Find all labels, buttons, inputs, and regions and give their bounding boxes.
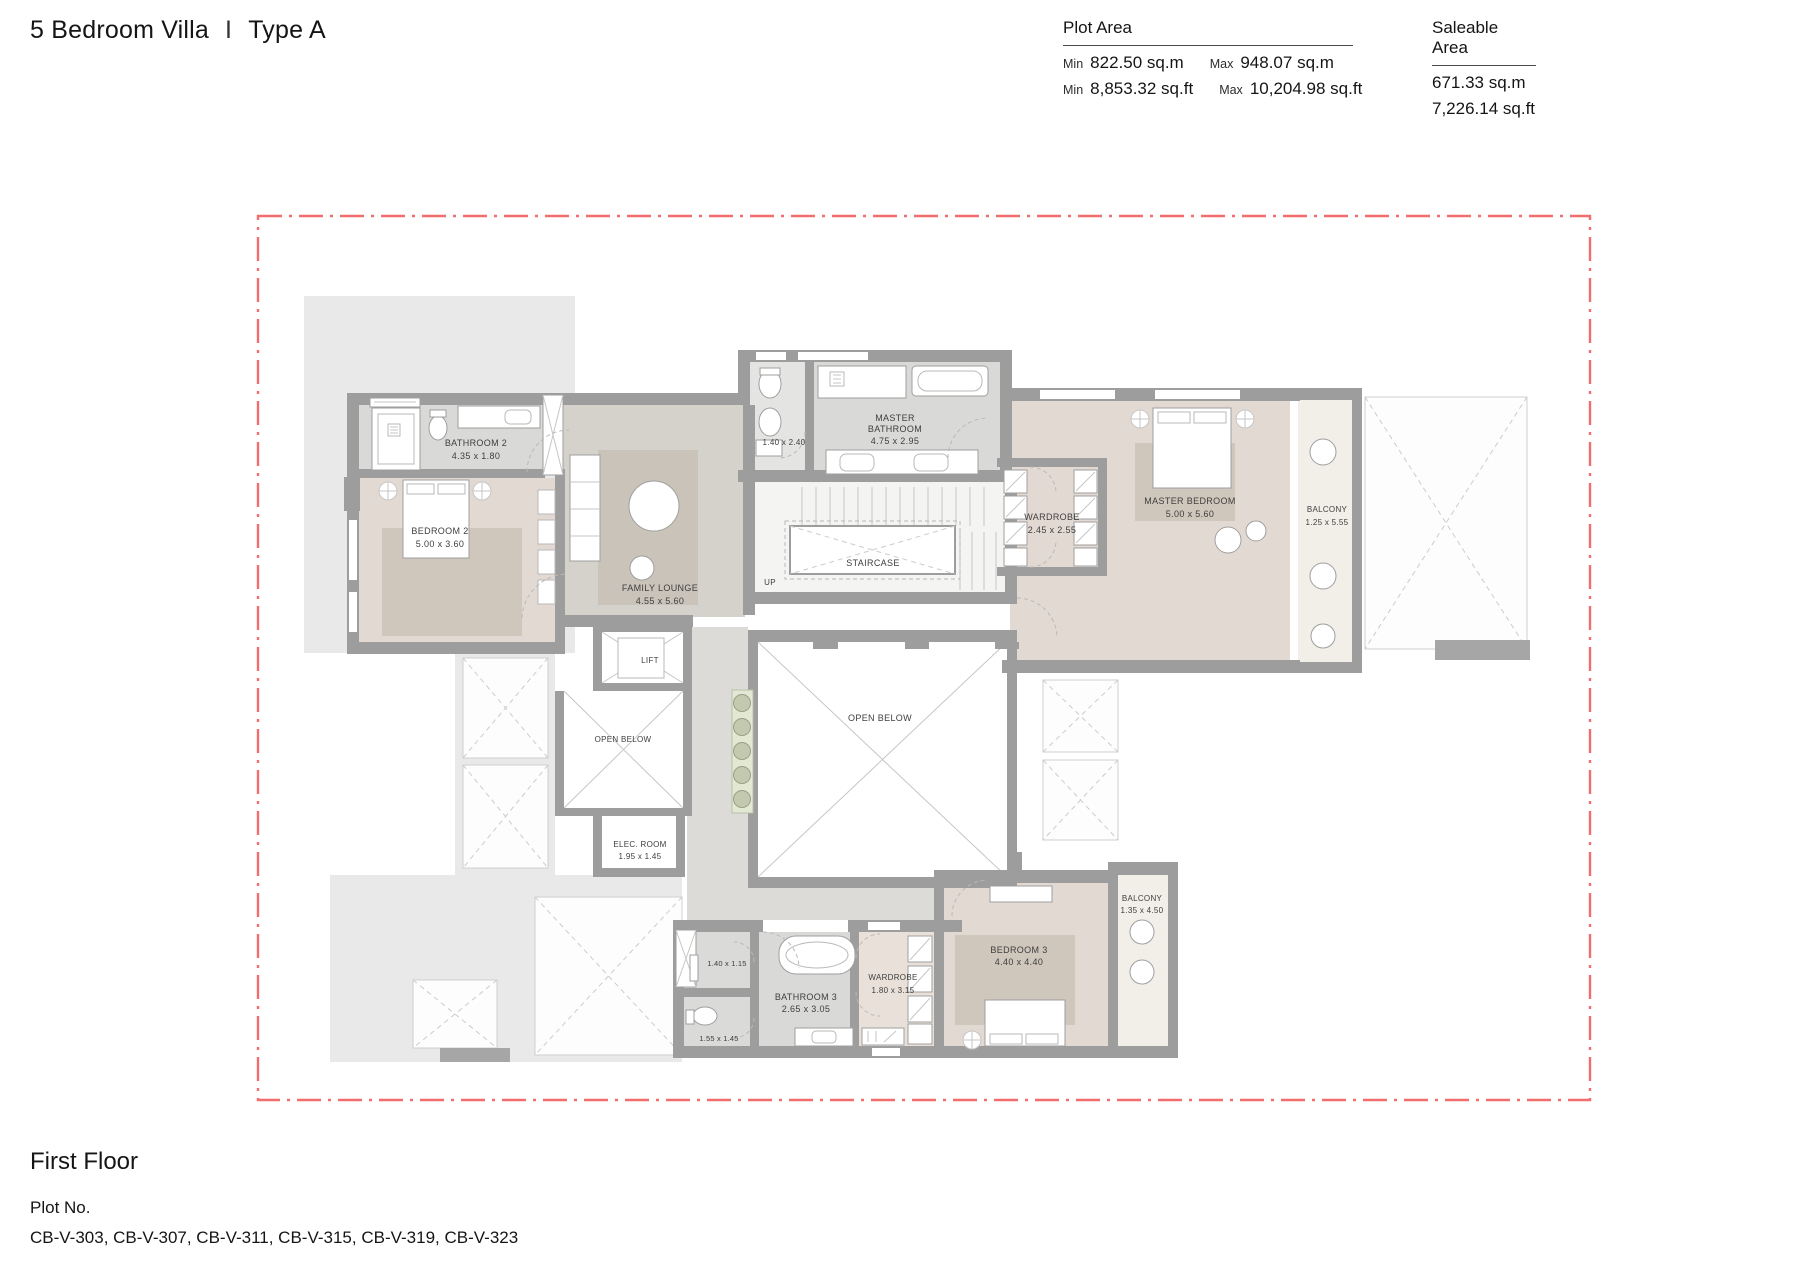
villa-title: 5 Bedroom Villa [30, 16, 209, 45]
elec-room-label: ELEC. ROOM [613, 840, 666, 849]
bedroom3-label: BEDROOM 3 [990, 945, 1047, 955]
saleable-area-block: Saleable Area 671.33 sq.m 7,226.14 sq.ft [1432, 18, 1536, 119]
plot-min-sqft: 8,853.32 sq.ft [1090, 79, 1193, 99]
master-balcony-label: BALCONY [1307, 505, 1348, 514]
plot-area-row-sqft: Min8,853.32 sq.ft Max10,204.98 sq.ft [1063, 79, 1353, 99]
planter-strip [732, 690, 753, 813]
bathroom2-label: BATHROOM 2 [445, 438, 507, 448]
bathroom2-dims: 4.35 x 1.80 [452, 451, 500, 461]
floor-name: First Floor [30, 1148, 138, 1176]
bedroom3-dims: 4.40 x 4.40 [995, 957, 1043, 967]
bedroom2-dims: 5.00 x 3.60 [416, 539, 464, 549]
wardrobe3-label: WARDROBE [868, 973, 917, 982]
upper-wc-dims: 1.40 x 2.40 [763, 438, 806, 447]
balcony3-label: BALCONY [1122, 894, 1163, 903]
plot-area-heading: Plot Area [1063, 18, 1353, 46]
family-lounge-dims: 4.55 x 5.60 [636, 596, 684, 606]
saleable-sqm: 671.33 sq.m [1432, 73, 1536, 93]
master-bathroom-label-1: MASTER [875, 413, 915, 423]
plot-area-block: Plot Area Min822.50 sq.m Max948.07 sq.m … [1063, 18, 1353, 99]
plot-min-sqm: 822.50 sq.m [1090, 53, 1184, 73]
plot-max-sqm: 948.07 sq.m [1240, 53, 1334, 73]
balcony3-dims: 1.35 x 4.50 [1121, 906, 1164, 915]
floor-plan-page: 5 Bedroom Villa I Type A Plot Area Min82… [0, 0, 1795, 1282]
min-label: Min [1063, 83, 1083, 97]
lift-label: LIFT [641, 656, 659, 665]
floor-plan-drawing: BATHROOM 2 4.35 x 1.80 BEDROOM 2 5.00 x … [0, 0, 1795, 1282]
title-separator: I [225, 16, 232, 45]
open-below-center-label: OPEN BELOW [848, 713, 912, 723]
bedroom2-label: BEDROOM 2 [411, 526, 468, 536]
open-below-left-label: OPEN BELOW [595, 735, 652, 744]
villa-type: Type A [248, 16, 326, 45]
plot-no-label: Plot No. [30, 1198, 90, 1218]
family-lounge-label: FAMILY LOUNGE [622, 583, 698, 593]
elec-room-dims: 1.95 x 1.45 [619, 852, 662, 861]
bathroom3-dims: 2.65 x 3.05 [782, 1004, 830, 1014]
page-title: 5 Bedroom Villa I Type A [30, 16, 326, 45]
max-label: Max [1219, 83, 1243, 97]
max-label: Max [1210, 57, 1234, 71]
master-balcony-dims: 1.25 x 5.55 [1306, 518, 1349, 527]
master-wardrobe-label: WARDROBE [1024, 512, 1079, 522]
bathroom3-label: BATHROOM 3 [775, 992, 837, 1002]
master-bathroom-label-2: BATHROOM [868, 424, 922, 434]
saleable-area-heading: Saleable Area [1432, 18, 1536, 66]
master-bedroom-dims: 5.00 x 5.60 [1166, 509, 1214, 519]
master-bathroom-dims: 4.75 x 2.95 [871, 436, 919, 446]
plot-max-sqft: 10,204.98 sq.ft [1250, 79, 1362, 99]
staircase-label: STAIRCASE [846, 558, 900, 568]
saleable-sqft: 7,226.14 sq.ft [1432, 99, 1536, 119]
plot-area-row-sqm: Min822.50 sq.m Max948.07 sq.m [1063, 53, 1353, 73]
master-bedroom-label: MASTER BEDROOM [1144, 496, 1235, 506]
open-below-center-area [758, 642, 1007, 877]
wc3a-dims: 1.40 x 1.15 [707, 959, 746, 968]
up-label: UP [764, 578, 776, 587]
master-wardrobe-dims: 2.45 x 2.55 [1028, 525, 1076, 535]
wardrobe3-dims: 1.80 x 3.15 [872, 986, 915, 995]
open-below-left-area [564, 691, 683, 808]
wc3b-dims: 1.55 x 1.45 [699, 1034, 738, 1043]
min-label: Min [1063, 57, 1083, 71]
plot-numbers: CB-V-303, CB-V-307, CB-V-311, CB-V-315, … [30, 1228, 518, 1248]
